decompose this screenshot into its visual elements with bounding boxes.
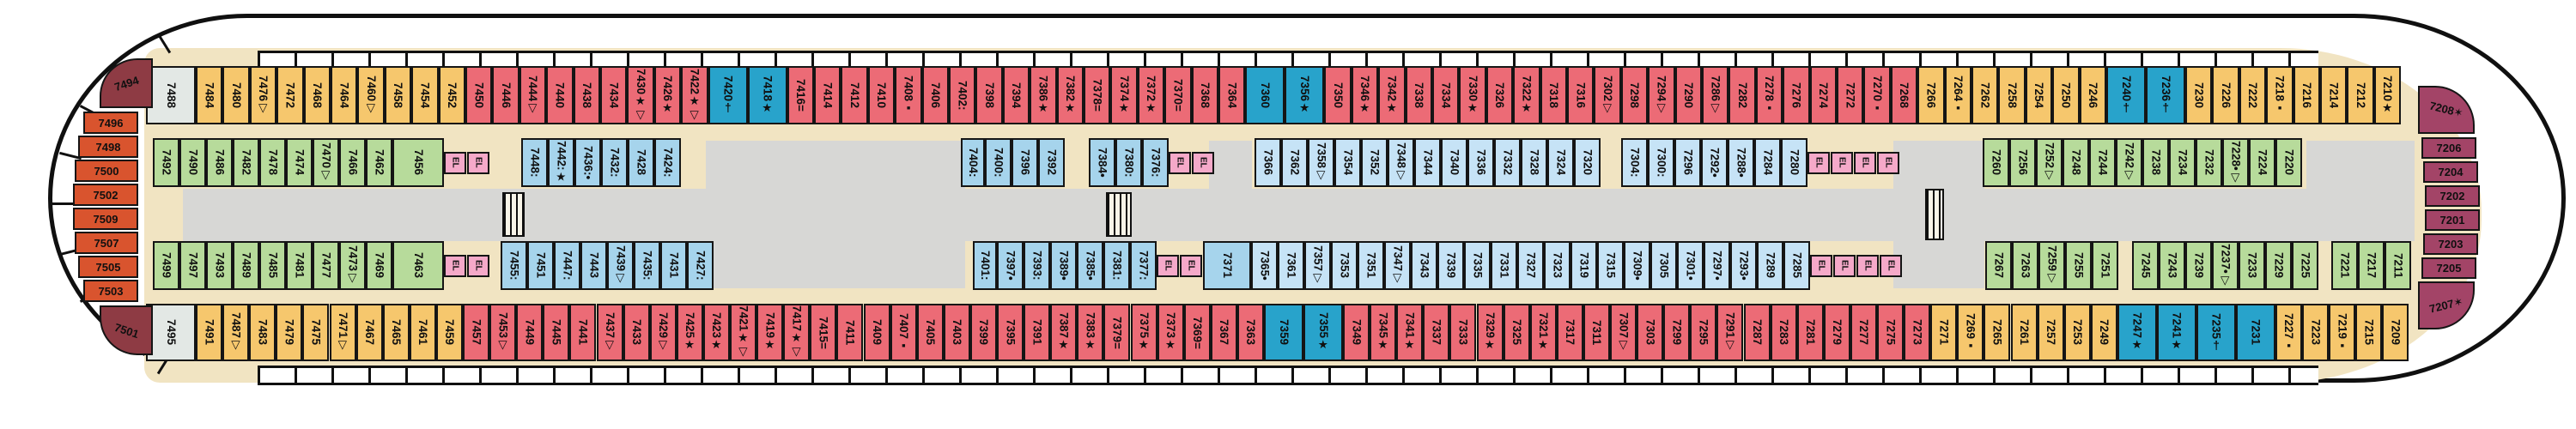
cabin-7316[interactable]: 7316 [1567, 66, 1594, 124]
cabin-7275[interactable]: 7275 [1877, 304, 1904, 361]
cabin-7359[interactable]: 7359 [1264, 304, 1303, 361]
cabin-7257[interactable]: 7257 [2038, 304, 2064, 361]
cabin-7403[interactable]: 7403 [944, 304, 970, 361]
cabin-7476[interactable]: 7476▽ [250, 66, 276, 124]
cabin-7225[interactable]: 7225 [2292, 241, 2318, 290]
cabin-7394[interactable]: 7394 [1003, 66, 1030, 124]
cabin-7462[interactable]: 7462 [366, 138, 392, 187]
cabin-7509[interactable]: 7509 [73, 208, 138, 230]
cabin-7431[interactable]: 7431 [660, 241, 687, 290]
cabin-7456[interactable]: 7456 [392, 138, 444, 187]
cabin-7293[interactable]: 7293• [1730, 241, 1757, 290]
cabin-7383[interactable]: 7383★ [1077, 304, 1103, 361]
cabin-7238[interactable]: 7238 [2142, 138, 2169, 187]
cabin-7354[interactable]: 7354 [1334, 138, 1361, 187]
cabin-7369[interactable]: 7369= [1184, 304, 1211, 361]
cabin-7307[interactable]: 7307▽ [1610, 304, 1637, 361]
cabin-7222[interactable]: 7222 [2239, 66, 2266, 124]
cabin-7325[interactable]: 7325 [1504, 304, 1530, 361]
cabin-7373[interactable]: 7373★ [1157, 304, 1184, 361]
cabin-7437[interactable]: 7437▽ [597, 304, 623, 361]
cabin-7477[interactable]: 7477 [313, 241, 339, 290]
cabin-7271[interactable]: 7271 [1930, 304, 1957, 361]
cabin-7498[interactable]: 7498 [78, 136, 138, 158]
cabin-7221[interactable]: 7221 [2331, 241, 2358, 290]
cabin-7335[interactable]: 7335 [1464, 241, 1491, 290]
cabin-7210[interactable]: 7210★ [2374, 66, 2401, 124]
cabin-7439[interactable]: 7439▽ [607, 241, 634, 290]
cabin-7279[interactable]: 7279 [1824, 304, 1850, 361]
cabin-7232[interactable]: 7232 [2196, 138, 2222, 187]
stairs-icon [502, 192, 525, 237]
cabin-7247[interactable]: 7247★ [2117, 304, 2157, 361]
cabin-7331[interactable]: 7331 [1491, 241, 1517, 290]
cabin-7277[interactable]: 7277 [1850, 304, 1877, 361]
cabin-7434[interactable]: 7434 [600, 66, 627, 124]
cabin-7404[interactable]: 7404: [961, 138, 985, 187]
cabin-7360[interactable]: 7360 [1245, 66, 1285, 124]
cabin-7464[interactable]: 7464 [331, 66, 357, 124]
cabin-7299[interactable]: 7299 [1663, 304, 1690, 361]
cabin-7266[interactable]: 7266 [1917, 66, 1944, 124]
cabin-7315[interactable]: 7315 [1597, 241, 1624, 290]
cabin-7435[interactable]: 7435: [634, 241, 660, 290]
cabin-7398[interactable]: 7398 [975, 66, 1002, 124]
cabin-7444[interactable]: 7444▽ [519, 66, 546, 124]
cabin-7326[interactable]: 7326 [1486, 66, 1513, 124]
cabin-7330[interactable]: 7330★ [1459, 66, 1485, 124]
cabin-7328[interactable]: 7328 [1521, 138, 1547, 187]
cabin-7470[interactable]: 7470▽ [313, 138, 339, 187]
cabin-7382[interactable]: 7382★ [1057, 66, 1084, 124]
cabin-7401[interactable]: 7401: [973, 241, 997, 290]
cabin-7332[interactable]: 7332 [1494, 138, 1521, 187]
cabin-7282[interactable]: 7282 [1728, 66, 1755, 124]
cabin-7278[interactable]: 7278▪ [1756, 66, 1783, 124]
cabin-number: 7491 [204, 319, 216, 345]
cabin-7429[interactable]: 7429▽ [650, 304, 677, 361]
cabin-7492[interactable]: 7492 [153, 138, 179, 187]
cabin-7376[interactable]: 7376: [1142, 138, 1169, 187]
cabin-7482[interactable]: 7482 [233, 138, 259, 187]
cabin-7270[interactable]: 7270▪ [1863, 66, 1890, 124]
cabin-7220[interactable]: 7220 [2275, 138, 2302, 187]
cabin-7380[interactable]: 7380: [1115, 138, 1142, 187]
cabin-7377[interactable]: 7377: [1130, 241, 1157, 290]
cabin-7365[interactable]: 7365• [1251, 241, 1278, 290]
cabin-7391[interactable]: 7391 [1024, 304, 1050, 361]
cabin-7408[interactable]: 7408▪ [895, 66, 921, 124]
cabin-7414[interactable]: 7414 [814, 66, 841, 124]
cabin-7481[interactable]: 7481 [286, 241, 313, 290]
cabin-7411[interactable]: 7411 [836, 304, 863, 361]
cabin-7362[interactable]: 7362 [1281, 138, 1308, 187]
cabin-7245[interactable]: 7245 [2132, 241, 2159, 290]
cabin-7333[interactable]: 7333 [1449, 304, 1476, 361]
cabin-7451[interactable]: 7451 [527, 241, 554, 290]
cabin-7467[interactable]: 7467 [356, 304, 383, 361]
cabin-7423[interactable]: 7423★ [703, 304, 730, 361]
cabin-7501[interactable]: 7501 [100, 305, 153, 355]
cabin-7409[interactable]: 7409 [864, 304, 890, 361]
cabin-7503[interactable]: 7503 [83, 280, 138, 302]
cabin-7385[interactable]: 7385• [1077, 241, 1103, 290]
cabin-7259[interactable]: 7259▽ [2038, 241, 2065, 290]
cabin-7461[interactable]: 7461 [410, 304, 436, 361]
cabin-7379[interactable]: 7379= [1103, 304, 1130, 361]
cabin-7309[interactable]: 7309• [1624, 241, 1650, 290]
cabin-7450[interactable]: 7450 [465, 66, 492, 124]
cabin-7228[interactable]: 7228•▽ [2222, 138, 2249, 187]
cabin-7346[interactable]: 7346★ [1352, 66, 1378, 124]
cabin-7216[interactable]: 7216 [2293, 66, 2320, 124]
cabin-7223[interactable]: 7223 [2302, 304, 2329, 361]
cabin-7287[interactable]: 7287 [1744, 304, 1771, 361]
cabin-7258[interactable]: 7258 [1998, 66, 2025, 124]
cabin-7263[interactable]: 7263 [2012, 241, 2038, 290]
cabin-7262[interactable]: 7262 [1971, 66, 1998, 124]
cabin-7320[interactable]: 7320 [1574, 138, 1601, 187]
elevator-label: EL [451, 157, 460, 168]
cabin-7219[interactable]: 7219▪ [2329, 304, 2355, 361]
cabin-7478[interactable]: 7478 [259, 138, 286, 187]
cabin-7267[interactable]: 7267 [1985, 241, 2012, 290]
cabin-7421[interactable]: 7421★▽ [730, 304, 756, 361]
cabin-7206[interactable]: 7206 [2421, 137, 2476, 159]
cabin-7285[interactable]: 7285 [1783, 241, 1810, 290]
cabin-7241[interactable]: 7241★ [2157, 304, 2196, 361]
cabin-7337[interactable]: 7337 [1423, 304, 1449, 361]
cabin-7329[interactable]: 7329★ [1477, 304, 1504, 361]
cabin-7441[interactable]: 7441 [569, 304, 596, 361]
cabin-7418[interactable]: 7418★ [748, 66, 787, 124]
cabin-7468[interactable]: 7468 [304, 66, 331, 124]
cabin-7488[interactable]: 7488 [146, 66, 196, 124]
cabin-7366[interactable]: 7366 [1255, 138, 1281, 187]
cabin-7381[interactable]: 7381: [1103, 241, 1130, 290]
cabin-7256[interactable]: 7256 [2009, 138, 2036, 187]
cabin-7233[interactable]: 7233 [2239, 241, 2265, 290]
cabin-7420[interactable]: 7420† [708, 66, 748, 124]
cabin-7490[interactable]: 7490 [179, 138, 206, 187]
cabin-7363[interactable]: 7363 [1237, 304, 1264, 361]
cabin-7372[interactable]: 7372★ [1138, 66, 1164, 124]
cabin-7327[interactable]: 7327 [1517, 241, 1544, 290]
cabin-7475[interactable]: 7475 [302, 304, 329, 361]
cabin-7358[interactable]: 7358▽ [1308, 138, 1334, 187]
cabin-7395[interactable]: 7395 [997, 304, 1024, 361]
cabin-7368[interactable]: 7368 [1192, 66, 1218, 124]
cabin-7454[interactable]: 7454 [411, 66, 438, 124]
cabin-7289[interactable]: 7289 [1757, 241, 1783, 290]
cabin-7347[interactable]: 7347▽ [1384, 241, 1411, 290]
cabin-7361[interactable]: 7361 [1278, 241, 1304, 290]
cabin-7427[interactable]: 7427: [687, 241, 714, 290]
cabin-7264[interactable]: 7264▪ [1945, 66, 1971, 124]
cabin-7211[interactable]: 7211 [2385, 241, 2411, 290]
cabin-7367[interactable]: 7367 [1211, 304, 1237, 361]
cabin-7321[interactable]: 7321★ [1530, 304, 1557, 361]
cabin-7202[interactable]: 7202 [2425, 185, 2480, 207]
cabin-7204[interactable]: 7204 [2423, 161, 2478, 183]
cabin-7239[interactable]: 7239 [2185, 241, 2212, 290]
cabin-7205[interactable]: 7205 [2421, 257, 2476, 279]
cabin-7229[interactable]: 7229 [2265, 241, 2292, 290]
cabin-7442[interactable]: 7442:★ [548, 138, 574, 187]
cabin-number: 7374★ [1118, 76, 1130, 115]
cabin-7227[interactable]: 7227▪ [2275, 304, 2302, 361]
cabin-7290[interactable]: 7290 [1675, 66, 1702, 124]
cabin-7370[interactable]: 7370= [1164, 66, 1191, 124]
cabin-7389[interactable]: 7389• [1050, 241, 1077, 290]
cabin-7251[interactable]: 7251 [2092, 241, 2118, 290]
cabin-7453[interactable]: 7453▽ [489, 304, 516, 361]
cabin-7349[interactable]: 7349 [1343, 304, 1370, 361]
cabin-7473[interactable]: 7473▽ [339, 241, 366, 290]
cabin-7235[interactable]: 7235† [2196, 304, 2236, 361]
cabin-7484[interactable]: 7484 [196, 66, 222, 124]
cabin-7295[interactable]: 7295 [1690, 304, 1716, 361]
cabin-7449[interactable]: 7449 [516, 304, 543, 361]
cabin-7424[interactable]: 7424: [654, 138, 681, 187]
cabin-7201[interactable]: 7201 [2425, 209, 2480, 231]
cabin-7300[interactable]: 7300: [1648, 138, 1674, 187]
cabin-7283[interactable]: 7283 [1771, 304, 1797, 361]
cabin-7254[interactable]: 7254 [2026, 66, 2052, 124]
cabin-7311[interactable]: 7311 [1583, 304, 1610, 361]
cabin-7412[interactable]: 7412 [841, 66, 867, 124]
cabin-7260[interactable]: 7260 [1983, 138, 2009, 187]
cabin-7448[interactable]: 7448: [521, 138, 548, 187]
cabin-7318[interactable]: 7318 [1540, 66, 1567, 124]
cabin-7343[interactable]: 7343 [1411, 241, 1437, 290]
cabin-7203[interactable]: 7203 [2423, 233, 2478, 255]
cabin-7446[interactable]: 7446 [492, 66, 519, 124]
cabin-7292[interactable]: 7292• [1701, 138, 1728, 187]
cabin-7265[interactable]: 7265 [1984, 304, 2010, 361]
cabin-7286[interactable]: 7286▽ [1702, 66, 1728, 124]
cabin-7268[interactable]: 7268 [1891, 66, 1917, 124]
cabin-7459[interactable]: 7459 [436, 304, 463, 361]
cabin-7243[interactable]: 7243 [2159, 241, 2185, 290]
cabin-7440[interactable]: 7440 [546, 66, 573, 124]
cabin-7387[interactable]: 7387★ [1050, 304, 1077, 361]
cabin-7302[interactable]: 7302▽ [1594, 66, 1620, 124]
cabin-7301[interactable]: 7301• [1677, 241, 1704, 290]
cabin-7416[interactable]: 7416= [787, 66, 814, 124]
cabin-7212[interactable]: 7212 [2347, 66, 2373, 124]
cabin-7244[interactable]: 7244 [2089, 138, 2116, 187]
cabin-7246[interactable]: 7246 [2080, 66, 2106, 124]
cabin-7405[interactable]: 7405 [917, 304, 944, 361]
cabin-7432[interactable]: 7432: [601, 138, 628, 187]
cabin-7353[interactable]: 7353 [1331, 241, 1358, 290]
cabin-7348[interactable]: 7348▽ [1388, 138, 1414, 187]
cabin-7253[interactable]: 7253 [2064, 304, 2091, 361]
cabin-7339[interactable]: 7339 [1437, 241, 1464, 290]
cabin-7351[interactable]: 7351 [1358, 241, 1384, 290]
cabin-7507[interactable]: 7507 [75, 232, 138, 254]
cabin-7487[interactable]: 7487▽ [222, 304, 249, 361]
cabin-7249[interactable]: 7249 [2091, 304, 2117, 361]
cabin-7344[interactable]: 7344 [1414, 138, 1441, 187]
cabin-7428[interactable]: 7428 [628, 138, 654, 187]
cabin-7215[interactable]: 7215 [2355, 304, 2382, 361]
cabin-7433[interactable]: 7433 [623, 304, 650, 361]
cabin-7489[interactable]: 7489 [233, 241, 259, 290]
cabin-7217[interactable]: 7217 [2358, 241, 2385, 290]
cabin-7274[interactable]: 7274 [1810, 66, 1837, 124]
cabin-number: 7438 [581, 82, 593, 108]
cabin-7352[interactable]: 7352 [1361, 138, 1388, 187]
cabin-7438[interactable]: 7438 [574, 66, 600, 124]
cabin-7324[interactable]: 7324 [1547, 138, 1574, 187]
cabin-7357[interactable]: 7357▽ [1304, 241, 1331, 290]
cabin-7406[interactable]: 7406 [922, 66, 949, 124]
cabin-7236[interactable]: 7236† [2146, 66, 2185, 124]
cabin-7355[interactable]: 7355★ [1303, 304, 1343, 361]
cabin-7447[interactable]: 7447: [554, 241, 580, 290]
cabin-7452[interactable]: 7452 [439, 66, 465, 124]
cabin-7426[interactable]: 7426★ [654, 66, 681, 124]
cabin-7224[interactable]: 7224 [2249, 138, 2275, 187]
cabin-7288[interactable]: 7288• [1728, 138, 1754, 187]
cabin-7469[interactable]: 7469 [366, 241, 392, 290]
cabin-7336[interactable]: 7336 [1467, 138, 1494, 187]
cabin-7234[interactable]: 7234 [2169, 138, 2196, 187]
cabin-7356[interactable]: 7356★ [1285, 66, 1324, 124]
cabin-7248[interactable]: 7248 [2063, 138, 2089, 187]
cabin-7443[interactable]: 7443 [580, 241, 607, 290]
cabin-7495[interactable]: 7495 [146, 304, 196, 361]
cabin-7485[interactable]: 7485 [259, 241, 286, 290]
cabin-7338[interactable]: 7338 [1406, 66, 1432, 124]
cabin-7392[interactable]: 7392 [1038, 138, 1065, 187]
cabin-7457[interactable]: 7457 [463, 304, 489, 361]
cabin-7281[interactable]: 7281 [1797, 304, 1824, 361]
cabin-7474[interactable]: 7474 [286, 138, 313, 187]
cabin-7378[interactable]: 7378= [1084, 66, 1110, 124]
cabin-7497[interactable]: 7497 [179, 241, 206, 290]
cabin-7298[interactable]: 7298 [1621, 66, 1648, 124]
cabin-7252[interactable]: 7252▽ [2036, 138, 2063, 187]
cabin-7226[interactable]: 7226 [2212, 66, 2239, 124]
cabin-7340[interactable]: 7340 [1441, 138, 1467, 187]
cabin-7345[interactable]: 7345★ [1370, 304, 1396, 361]
cabin-7242[interactable]: 7242▽ [2116, 138, 2142, 187]
cabin-7269[interactable]: 7269▪ [1957, 304, 1984, 361]
cabin-7284[interactable]: 7284 [1754, 138, 1781, 187]
cabin-7499[interactable]: 7499 [153, 241, 179, 290]
cabin-7334[interactable]: 7334 [1432, 66, 1459, 124]
cabin-7445[interactable]: 7445 [543, 304, 569, 361]
cabin-7297[interactable]: 7297• [1704, 241, 1730, 290]
cabin-7458[interactable]: 7458 [385, 66, 411, 124]
cabin-7455[interactable]: 7455: [501, 241, 527, 290]
cabin-7502[interactable]: 7502 [73, 184, 138, 206]
cabin-7342[interactable]: 7342★ [1378, 66, 1405, 124]
cabin-7374[interactable]: 7374★ [1110, 66, 1137, 124]
cabin-7209[interactable]: 7209 [2382, 304, 2409, 361]
cabin-7496[interactable]: 7496 [83, 112, 138, 134]
cabin-7261[interactable]: 7261 [2011, 304, 2038, 361]
cabin-7505[interactable]: 7505 [78, 256, 138, 278]
cabin-7480[interactable]: 7480 [222, 66, 249, 124]
cabin-7273[interactable]: 7273 [1904, 304, 1930, 361]
cabin-7500[interactable]: 7500 [75, 160, 138, 182]
cabin-7407[interactable]: 7407▪ [890, 304, 917, 361]
cabin-7436[interactable]: 7436:• [574, 138, 601, 187]
cabin-number: 7365• [1259, 251, 1271, 281]
cabin-7486[interactable]: 7486 [206, 138, 233, 187]
cabin-7471[interactable]: 7471▽ [330, 304, 356, 361]
cabin-7371[interactable]: 7371 [1203, 241, 1251, 290]
cabin-7425[interactable]: 7425★ [677, 304, 703, 361]
cabin-7280[interactable]: 7280 [1781, 138, 1807, 187]
cabin-7319[interactable]: 7319 [1571, 241, 1597, 290]
cabin-7272[interactable]: 7272 [1837, 66, 1863, 124]
cabin-7493[interactable]: 7493 [206, 241, 233, 290]
cabin-7218[interactable]: 7218▪ [2266, 66, 2293, 124]
cabin-7350[interactable]: 7350 [1324, 66, 1351, 124]
cabin-7276[interactable]: 7276 [1783, 66, 1809, 124]
cabin-7463[interactable]: 7463 [392, 241, 444, 290]
cabin-7472[interactable]: 7472 [276, 66, 303, 124]
cabin-7479[interactable]: 7479 [276, 304, 302, 361]
cabin-7396[interactable]: 7396 [1012, 138, 1038, 187]
cabin-7322[interactable]: 7322★ [1513, 66, 1540, 124]
cabin-7466[interactable]: 7466 [339, 138, 366, 187]
cabin-7296[interactable]: 7296 [1674, 138, 1701, 187]
cabin-7317[interactable]: 7317 [1557, 304, 1583, 361]
cabin-7483[interactable]: 7483 [249, 304, 276, 361]
cabin-7250[interactable]: 7250 [2052, 66, 2079, 124]
cabin-7375[interactable]: 7375★ [1131, 304, 1157, 361]
cabin-7491[interactable]: 7491 [196, 304, 222, 361]
cabin-7255[interactable]: 7255 [2065, 241, 2092, 290]
cabin-7397[interactable]: 7397• [997, 241, 1024, 290]
cabin-7402[interactable]: 7402: [949, 66, 975, 124]
cabin-7386[interactable]: 7386★ [1030, 66, 1056, 124]
cabin-7294[interactable]: 7294▽ [1648, 66, 1674, 124]
cabin-7237[interactable]: 7237•▽ [2212, 241, 2239, 290]
cabin-7341[interactable]: 7341★ [1396, 304, 1423, 361]
cabin-7305[interactable]: 7305 [1650, 241, 1677, 290]
cabin-7415[interactable]: 7415= [810, 304, 836, 361]
cabin-7304[interactable]: 7304: [1621, 138, 1648, 187]
cabin-7303[interactable]: 7303 [1637, 304, 1663, 361]
cabin-7393[interactable]: 7393: [1024, 241, 1050, 290]
cabin-7291[interactable]: 7291▽ [1716, 304, 1743, 361]
cabin-7422[interactable]: 7422★▽ [681, 66, 708, 124]
cabin-7240[interactable]: 7240† [2106, 66, 2146, 124]
cabin-7460[interactable]: 7460▽ [357, 66, 384, 124]
cabin-7323[interactable]: 7323 [1544, 241, 1571, 290]
cabin-7400[interactable]: 7400: [985, 138, 1012, 187]
cabin-7231[interactable]: 7231 [2236, 304, 2275, 361]
cabin-7214[interactable]: 7214 [2320, 66, 2347, 124]
cabin-7419[interactable]: 7419★ [756, 304, 783, 361]
cabin-number: 7319 [1578, 252, 1590, 278]
cabin-7465[interactable]: 7465 [383, 304, 410, 361]
cabin-7230[interactable]: 7230 [2185, 66, 2212, 124]
cabin-7410[interactable]: 7410 [868, 66, 895, 124]
cabin-7399[interactable]: 7399 [970, 304, 997, 361]
cabin-7430[interactable]: 7430★▽ [627, 66, 653, 124]
cabin-7384[interactable]: 7384• [1089, 138, 1115, 187]
cabin-7364[interactable]: 7364 [1218, 66, 1245, 124]
cabin-7417[interactable]: 7417★▽ [783, 304, 810, 361]
